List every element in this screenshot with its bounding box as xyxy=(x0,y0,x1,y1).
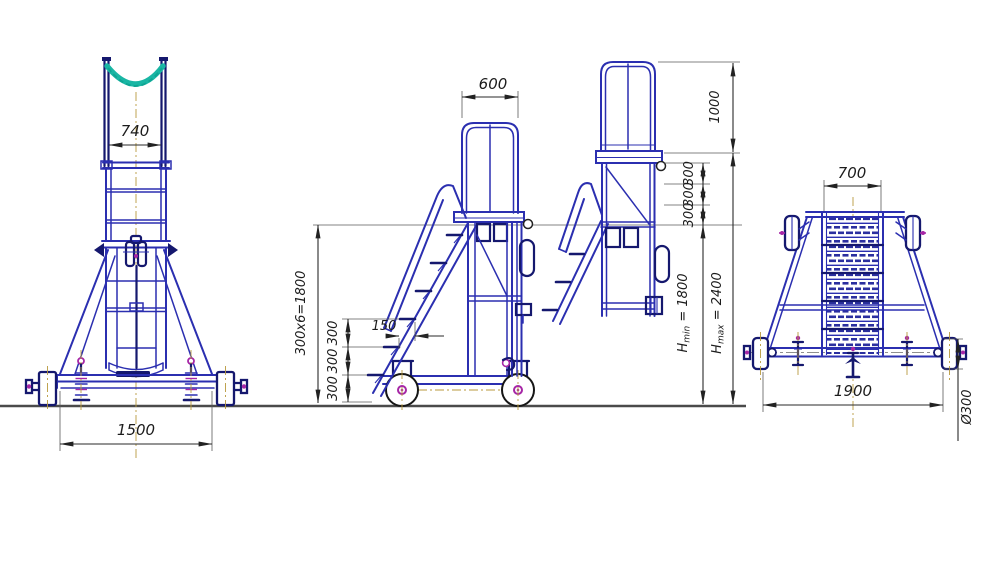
ladder-handrail xyxy=(384,185,466,331)
ladder-lowered xyxy=(368,185,476,396)
hmax-value: = 2400 xyxy=(710,272,725,324)
dim-600-label: 600 xyxy=(479,75,508,93)
pull-handle-raised xyxy=(655,246,669,282)
right-side-roller xyxy=(896,216,926,250)
height-lock-clamp xyxy=(516,304,531,315)
dim-1500-label: 1500 xyxy=(117,421,155,439)
right-cleat xyxy=(168,243,178,257)
hmin-symbol: H xyxy=(676,343,691,353)
dim-700-label: 700 xyxy=(838,164,867,182)
ladder-raised xyxy=(543,183,608,324)
side-view-lowered: 600 300x6=1800 300 300 300 150 xyxy=(294,75,534,410)
dim-740-label: 740 xyxy=(121,122,150,140)
hmin-subscript: min xyxy=(683,325,693,342)
front-view: 740 1500 xyxy=(26,57,247,458)
left-cleat xyxy=(94,243,104,257)
hmax-symbol: H xyxy=(710,344,725,354)
rear-view: 700 1900 Ø300 xyxy=(744,164,975,441)
platform-raised xyxy=(596,62,666,171)
side-frame-raised xyxy=(601,163,669,316)
lock-pin xyxy=(524,220,533,229)
drawing-canvas: 740 1500 xyxy=(0,0,1000,563)
rear-left-wheel xyxy=(744,332,768,380)
dim-adjust-steps: 300 300 300 xyxy=(664,161,710,227)
dim-adjust-3: 300 xyxy=(682,203,697,228)
dim-1800-label: 300x6=1800 xyxy=(294,271,309,356)
front-left-wheel xyxy=(26,366,56,410)
side-view-raised: 1000 300 300 300 Hmin = 1800 Hmax = 2400 xyxy=(543,62,740,404)
dim-wheel-dia-label: Ø300 xyxy=(960,389,975,425)
dim-h-max: Hmax = 2400 xyxy=(710,153,733,404)
dim-guard-width: 600 xyxy=(462,75,518,118)
dim-ladder-width: 700 xyxy=(824,164,881,211)
dim-1000-label: 1000 xyxy=(708,90,723,123)
cradle-sling xyxy=(107,66,163,86)
dim-mast-width: 740 xyxy=(109,122,161,145)
left-side-roller xyxy=(779,216,809,250)
dim-rise-3: 300 xyxy=(326,376,341,401)
technical-drawing: 740 1500 xyxy=(0,0,1000,563)
dim-150-label: 150 xyxy=(372,319,397,334)
ladder-track xyxy=(822,213,883,355)
hmax-subscript: max xyxy=(717,324,727,344)
hmin-value: = 1800 xyxy=(676,273,691,325)
dim-hmax-label: Hmax = 2400 xyxy=(710,272,727,354)
dim-tread-depth: 150 xyxy=(372,319,444,349)
dim-rise-2: 300 xyxy=(326,349,341,374)
front-right-wheel xyxy=(217,366,247,410)
rear-left-jack xyxy=(793,332,803,378)
dim-guard-height: 1000 xyxy=(658,62,740,153)
dim-hmin-label: Hmin = 1800 xyxy=(676,273,693,352)
rear-right-jack xyxy=(902,332,912,378)
dim-rise-total: 300x6=1800 xyxy=(294,225,318,403)
dim-rise-1: 300 xyxy=(326,321,341,346)
dim-h-min: Hmin = 1800 xyxy=(676,225,703,404)
dim-1900-label: 1900 xyxy=(834,382,872,400)
side-frame-lowered xyxy=(468,222,534,376)
